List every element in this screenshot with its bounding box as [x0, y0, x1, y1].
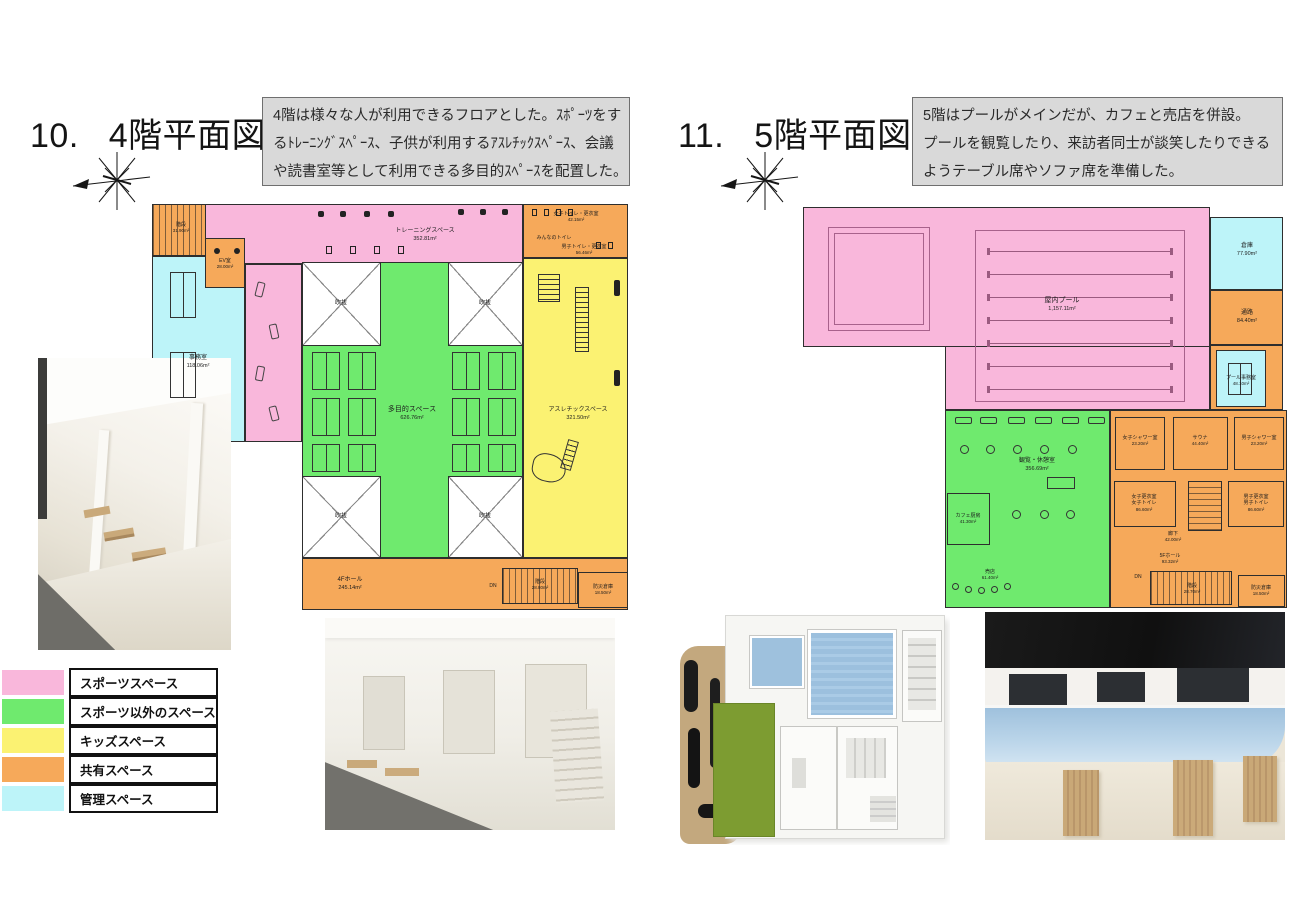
equipment-icon [398, 246, 404, 254]
furniture-table [348, 352, 376, 390]
room-label-corridor-bottom: 廊下 42.00m² [1165, 531, 1182, 543]
model-photo-5f-aerial [680, 608, 950, 845]
pool-lane [989, 251, 1171, 252]
room-label-w-locker: 女子更衣室 女子トイレ 86.60m² [1131, 494, 1156, 512]
sofa-icon [1035, 417, 1052, 424]
room-label-m-shower: 男子シャワー室 23.20m² [1241, 435, 1276, 447]
photo-bench [385, 768, 419, 776]
photo-bench [347, 760, 377, 768]
furniture-table [312, 444, 340, 472]
floor-plan-5f: 屋内プール 1,157.11m² 倉庫 77.90m² 通路 84.40m² プ… [800, 205, 1287, 610]
description-line: 4階は様々な人が利用できるフロアとした。ｽﾎﾟｰﾂをす [273, 102, 619, 130]
pool-lane [989, 343, 1171, 344]
model-photo-5f-pool-closeup [985, 612, 1285, 840]
description-line: ようテーブル席やソファ席を準備した。 [923, 158, 1272, 186]
round-table-icon [1013, 445, 1022, 454]
room-label-lounge: 観覧・休憩室 356.69m² [1019, 458, 1055, 472]
stool-icon [965, 586, 972, 593]
legend-label: スポーツ以外のスペース [69, 697, 218, 726]
model-photo-4f-interior-left [38, 358, 231, 650]
photo-window [1177, 668, 1249, 702]
ladder-icon [575, 287, 589, 352]
description-box-4f: 4階は様々な人が利用できるフロアとした。ｽﾎﾟｰﾂをす るﾄﾚｰﾆﾝｸﾞｽﾍﾟｰ… [262, 97, 630, 186]
room-label-pool: 屋内プール 1,157.11m² [1045, 297, 1080, 313]
photo-ceiling [325, 618, 615, 638]
pool-lane [989, 389, 1171, 390]
room-label-void: 吹抜 [479, 300, 491, 308]
room-label-m-locker: 男子更衣室 男子トイレ 86.60m² [1243, 494, 1268, 512]
sofa-icon [980, 417, 997, 424]
round-table-icon [1040, 445, 1049, 454]
stool-icon [952, 583, 959, 590]
stool-icon [991, 586, 998, 593]
legend-row: 管理スペース [2, 784, 218, 813]
room-label-dn: DN [1134, 574, 1141, 580]
fixture-icon [544, 209, 549, 216]
photo-lawn [714, 704, 774, 836]
photo-bench [103, 527, 134, 541]
room-label-storage-tr: 倉庫 77.90m² [1237, 243, 1257, 257]
fixture-icon [608, 242, 613, 249]
pool-lane [989, 297, 1171, 298]
legend-swatch-kids [2, 728, 64, 753]
photo-stair [870, 796, 896, 822]
equipment-icon [480, 209, 486, 215]
photo-wood-chair [1063, 770, 1099, 836]
furniture-table [348, 444, 376, 472]
furniture-table [488, 398, 516, 436]
photo-dark-edge [38, 358, 47, 519]
legend-swatch-sports [2, 670, 64, 695]
model-photo-4f-interior-bottom [325, 618, 615, 830]
pool-lane [989, 274, 1171, 275]
equipment-icon [214, 248, 220, 254]
description-line: 5階はプールがメインだが、カフェと売店を併設。 [923, 102, 1272, 130]
legend-row: スポーツスペース [2, 668, 218, 697]
photo-furniture [846, 738, 886, 778]
stool-icon [1004, 583, 1011, 590]
room-label-cafe-kitchen: カフェ厨房 41.30m² [955, 513, 980, 525]
furniture-table [348, 398, 376, 436]
room-label-stairs-5f: 階段 28.70m² [1184, 583, 1201, 595]
room-label-storage: 防災倉庫 18.50m² [593, 584, 613, 596]
room-label-void: 吹抜 [335, 300, 347, 308]
room-label-w-toilet: 女子トイレ・更衣室 42.15m² [553, 211, 598, 223]
equipment-icon [318, 211, 324, 217]
legend-label: スポーツスペース [69, 668, 218, 697]
room-label-office: 事務室 118.06m² [187, 355, 210, 369]
photo-wall-line [836, 726, 838, 830]
sofa-icon [1008, 417, 1025, 424]
photo-small-pool [750, 636, 804, 688]
sofa-icon [1062, 417, 1079, 424]
photo-opening [363, 676, 405, 750]
lap-pool [975, 230, 1185, 402]
room-label-training: トレーニングスペース 352.81m² [395, 228, 454, 242]
legend-label: キッズスペース [69, 726, 218, 755]
long-table-icon [1047, 477, 1075, 489]
equipment-icon [388, 211, 394, 217]
room-label-w-shower: 女子シャワー室 23.20m² [1122, 435, 1157, 447]
pool-lane [989, 366, 1171, 367]
legend-row: キッズスペース [2, 726, 218, 755]
round-table-icon [1040, 510, 1049, 519]
fixture-icon [532, 209, 537, 216]
zone-lockers [1188, 481, 1222, 531]
room-label-storage-5f: 防災倉庫 18.50m² [1251, 585, 1271, 597]
photo-big-pool [808, 630, 896, 718]
legend-row: スポーツ以外のスペース [2, 697, 218, 726]
equipment-icon [326, 246, 332, 254]
equipment-icon [364, 211, 370, 217]
photo-wood-chair [1243, 756, 1277, 822]
description-line: プールを観覧したり、来訪者同士が談笑したりできる [923, 130, 1272, 158]
furniture-table [312, 398, 340, 436]
furniture-table [312, 352, 340, 390]
room-label-void: 吹抜 [479, 513, 491, 521]
room-label-m-toilet: 男子トイレ・更衣室 56.46m² [561, 244, 606, 256]
compass-icon [55, 150, 160, 212]
equipment-icon [614, 370, 620, 386]
compass-icon [703, 150, 808, 212]
room-label-hall-5f: 5Fホール 93.32m² [1160, 553, 1181, 565]
room-label-void: 吹抜 [335, 513, 347, 521]
photo-deck [985, 762, 1285, 840]
round-table-icon [1066, 510, 1075, 519]
photo-shelves [908, 638, 936, 710]
equipment-icon [502, 209, 508, 215]
furniture-table [452, 398, 480, 436]
legend-label: 管理スペース [69, 784, 218, 813]
equipment-icon [234, 248, 240, 254]
equipment-icon [614, 280, 620, 296]
room-label-stairs-top-left: 階段 31.90m² [173, 222, 190, 234]
room-label-corridor-right: 通路 84.40m² [1237, 310, 1257, 324]
room-label-pool-office: プール事務室 48.10m² [1226, 375, 1256, 387]
description-line: や読書室等として利用できる多目的ｽﾍﾟｰｽを配置した。 [273, 158, 619, 186]
equipment-icon [374, 246, 380, 254]
room-label-ev: EV室 28.00m² [217, 258, 234, 270]
photo-stair [550, 708, 604, 803]
room-label-minna-toilet: みんなのトイレ [536, 235, 571, 241]
room-label-dn: DN [489, 583, 496, 589]
room-label-stairs-bottom: 階段 28.80m² [532, 579, 549, 591]
stool-icon [978, 587, 985, 594]
round-table-icon [1068, 445, 1077, 454]
photo-pool-surface [985, 708, 1285, 766]
room-label-shop: 売店 61.40m² [982, 569, 999, 581]
equipment-icon [350, 246, 356, 254]
furniture-table [452, 352, 480, 390]
furniture-table [488, 444, 516, 472]
photo-window [1097, 672, 1145, 702]
equipment-icon [458, 209, 464, 215]
photo-furniture [792, 758, 806, 788]
room-label-multipurpose: 多目的スペース 626.76m² [388, 406, 436, 422]
legend-swatch-shared [2, 757, 64, 782]
photo-rock [688, 728, 700, 788]
room-label-hall-4f: 4Fホール 245.14m² [337, 577, 362, 591]
furniture-table [488, 352, 516, 390]
photo-opening [443, 670, 495, 754]
photo-rock [684, 660, 698, 712]
sofa-icon [1088, 417, 1105, 424]
small-pool [828, 227, 930, 331]
round-table-icon [986, 445, 995, 454]
room-label-sauna: サウナ 44.40m² [1192, 435, 1209, 447]
furniture-desk [170, 272, 196, 318]
legend-label: 共有スペース [69, 755, 218, 784]
pool-lane [989, 320, 1171, 321]
presentation-page: 10.4階平面図 4階は様々な人が利用できるフロアとした。ｽﾎﾟｰﾂをす るﾄﾚ… [0, 0, 1300, 919]
ladder-icon [538, 274, 560, 302]
description-line: るﾄﾚｰﾆﾝｸﾞｽﾍﾟｰｽ、子供が利用するｱｽﾚﾁｯｸｽﾍﾟｰｽ、会議 [273, 130, 619, 158]
equipment-icon [340, 211, 346, 217]
sofa-icon [955, 417, 972, 424]
photo-window [1009, 674, 1067, 706]
legend-swatch-non-sports [2, 699, 64, 724]
round-table-icon [1012, 510, 1021, 519]
legend-row: 共有スペース [2, 755, 218, 784]
room-label-athletic: アスレチックスペース 321.50m² [548, 407, 607, 421]
description-box-5f: 5階はプールがメインだが、カフェと売店を併設。 プールを観覧したり、来訪者同士が… [912, 97, 1283, 186]
photo-pillar [89, 430, 109, 580]
round-table-icon [960, 445, 969, 454]
furniture-table [452, 444, 480, 472]
legend-swatch-admin [2, 786, 64, 811]
photo-wood-chair [1173, 760, 1213, 836]
